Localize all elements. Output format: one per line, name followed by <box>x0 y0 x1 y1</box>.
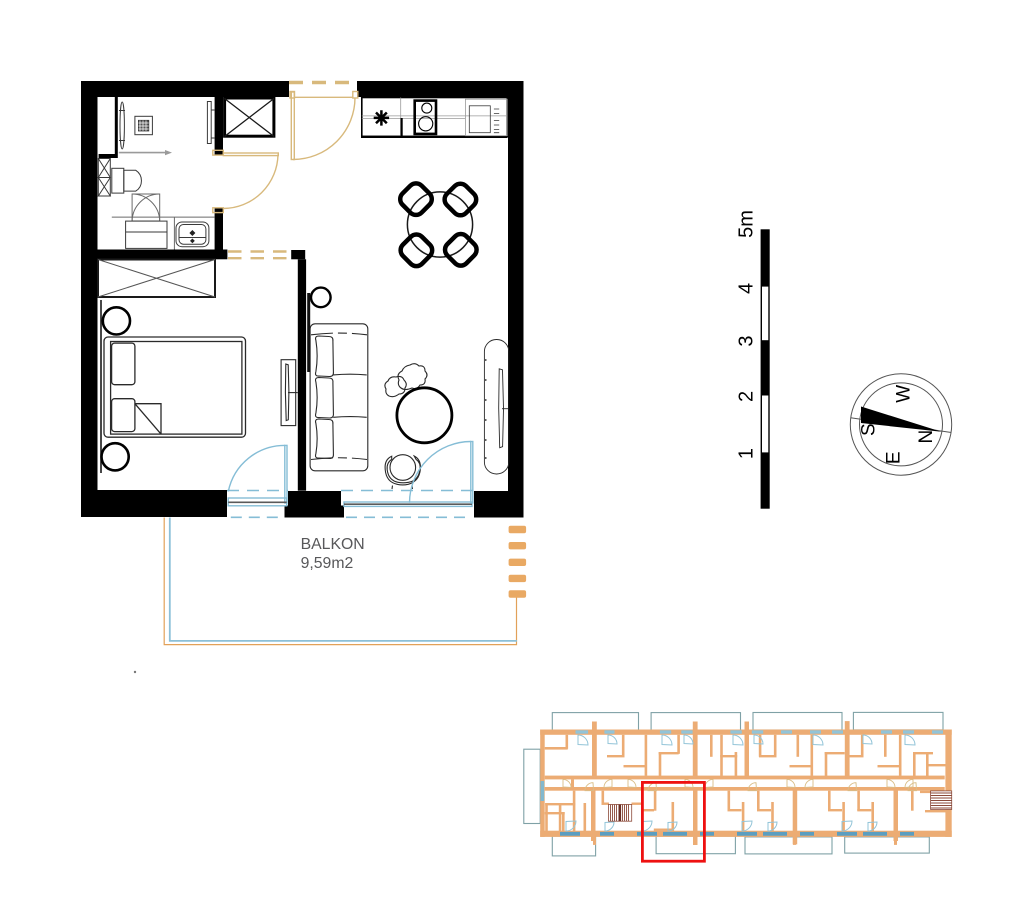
svg-text:1: 1 <box>736 448 758 459</box>
svg-text:3: 3 <box>736 336 758 347</box>
svg-text:E: E <box>884 451 905 464</box>
svg-text:S: S <box>859 423 880 436</box>
svg-text:2: 2 <box>736 391 758 402</box>
svg-text:9,59m2: 9,59m2 <box>301 555 354 572</box>
svg-text:BALKON: BALKON <box>301 536 365 553</box>
svg-text:5m: 5m <box>736 210 758 238</box>
svg-text:N: N <box>916 430 937 444</box>
svg-text:4: 4 <box>736 283 758 294</box>
svg-text:W: W <box>894 385 915 403</box>
